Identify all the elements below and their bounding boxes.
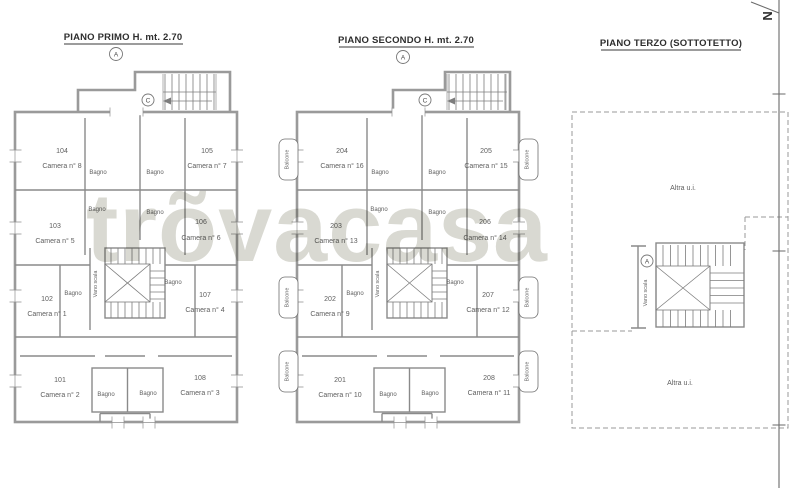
room-code: 102 bbox=[41, 296, 53, 303]
room-name: Camera n° 5 bbox=[35, 237, 74, 245]
room-name: Camera n° 14 bbox=[463, 234, 506, 242]
stair-annex bbox=[393, 72, 510, 112]
stair-annex bbox=[78, 72, 230, 112]
bath-label: Bagno bbox=[97, 392, 115, 398]
room-code: 202 bbox=[324, 296, 336, 303]
room-code: 205 bbox=[480, 148, 492, 155]
room-code: 201 bbox=[334, 377, 346, 384]
room-code: 207 bbox=[482, 292, 494, 299]
balcony-label: Balcone bbox=[525, 150, 531, 170]
plan-title: PIANO PRIMO H. mt. 2.70 bbox=[64, 32, 183, 43]
room-code: 208 bbox=[483, 375, 495, 382]
room-code: 104 bbox=[56, 148, 68, 155]
room-name: Camera n° 4 bbox=[185, 306, 224, 314]
bath-label: Bagno bbox=[371, 170, 389, 176]
bath-label: Bagno bbox=[346, 291, 364, 297]
stairwell-label: Vano scala bbox=[93, 270, 99, 298]
bath-label: Bagno bbox=[89, 170, 107, 176]
bath-label: Bagno bbox=[139, 391, 157, 397]
bath-label: Bagno bbox=[146, 210, 164, 216]
balcony-label: Balcone bbox=[285, 288, 291, 308]
floor-plan-drawing: PIANO PRIMO H. mt. 2.70 A C 104 Camera n… bbox=[0, 0, 795, 488]
north-label: N bbox=[760, 11, 775, 20]
bath-label: Bagno bbox=[428, 170, 446, 176]
room-name: Camera n° 9 bbox=[310, 310, 349, 318]
room-name: Camera n° 12 bbox=[466, 306, 509, 314]
room-name: Camera n° 16 bbox=[320, 162, 363, 170]
room-code: 204 bbox=[336, 148, 348, 155]
stairwell-label: Vano scala bbox=[643, 279, 649, 307]
other-unit-label: Altra u.i. bbox=[667, 380, 693, 387]
room-code: 108 bbox=[194, 375, 206, 382]
bath-label: Bagno bbox=[428, 210, 446, 216]
room-code: 103 bbox=[49, 223, 61, 230]
piano-terzo-plan: PIANO TERZO (SOTTOTETTO) A Vano scala Al… bbox=[572, 38, 788, 428]
room-name: Camera n° 6 bbox=[181, 234, 220, 242]
balcony-label: Balcone bbox=[285, 362, 291, 382]
room-name: Camera n° 1 bbox=[27, 310, 66, 318]
room-name: Camera n° 15 bbox=[464, 162, 507, 170]
piano-secondo-plan: PIANO SECONDO H. mt. 2.70 A C Balcone Ba… bbox=[279, 35, 538, 429]
bath-label: Bagno bbox=[88, 207, 106, 213]
balcony-label: Balcone bbox=[285, 150, 291, 170]
balcony-label: Balcone bbox=[525, 288, 531, 308]
balcony-label: Balcone bbox=[525, 362, 531, 382]
piano-primo-plan: PIANO PRIMO H. mt. 2.70 A C 104 Camera n… bbox=[10, 32, 244, 429]
room-code: 101 bbox=[54, 377, 66, 384]
room-code: 106 bbox=[195, 219, 207, 226]
room-name: Camera n° 7 bbox=[187, 162, 226, 170]
room-code: 105 bbox=[201, 148, 213, 155]
bath-label: Bagno bbox=[146, 170, 164, 176]
other-unit-label: Altra u.i. bbox=[670, 185, 696, 192]
stair-marker: C bbox=[146, 97, 151, 104]
plan-title: PIANO SECONDO H. mt. 2.70 bbox=[338, 35, 474, 46]
room-name: Camera n° 13 bbox=[314, 237, 357, 245]
room-code: 107 bbox=[199, 292, 211, 299]
room-name: Camera n° 10 bbox=[318, 391, 361, 399]
room-name: Camera n° 11 bbox=[468, 389, 511, 397]
stair-marker: C bbox=[423, 97, 428, 104]
stairwell-label: Vano scala bbox=[375, 270, 381, 298]
room-name: Camera n° 8 bbox=[42, 162, 81, 170]
bath-label: Bagno bbox=[379, 392, 397, 398]
bath-label: Bagno bbox=[421, 391, 439, 397]
section-marker: A bbox=[401, 54, 406, 61]
bath-label: Bagno bbox=[64, 291, 82, 297]
floor-plan-sheet: { "watermark": "trõvacasa", "north_label… bbox=[0, 0, 795, 488]
room-name: Camera n° 3 bbox=[180, 389, 219, 397]
room-code: 206 bbox=[479, 219, 491, 226]
plan-title: PIANO TERZO (SOTTOTETTO) bbox=[600, 38, 742, 49]
bath-label: Bagno bbox=[370, 207, 388, 213]
room-code: 203 bbox=[330, 223, 342, 230]
bath-label: Bagno bbox=[164, 280, 182, 286]
section-marker: A bbox=[645, 258, 650, 265]
room-name: Camera n° 2 bbox=[40, 391, 79, 399]
section-marker: A bbox=[114, 51, 119, 58]
north-indicator: N bbox=[751, 0, 786, 488]
bath-label: Bagno bbox=[446, 280, 464, 286]
